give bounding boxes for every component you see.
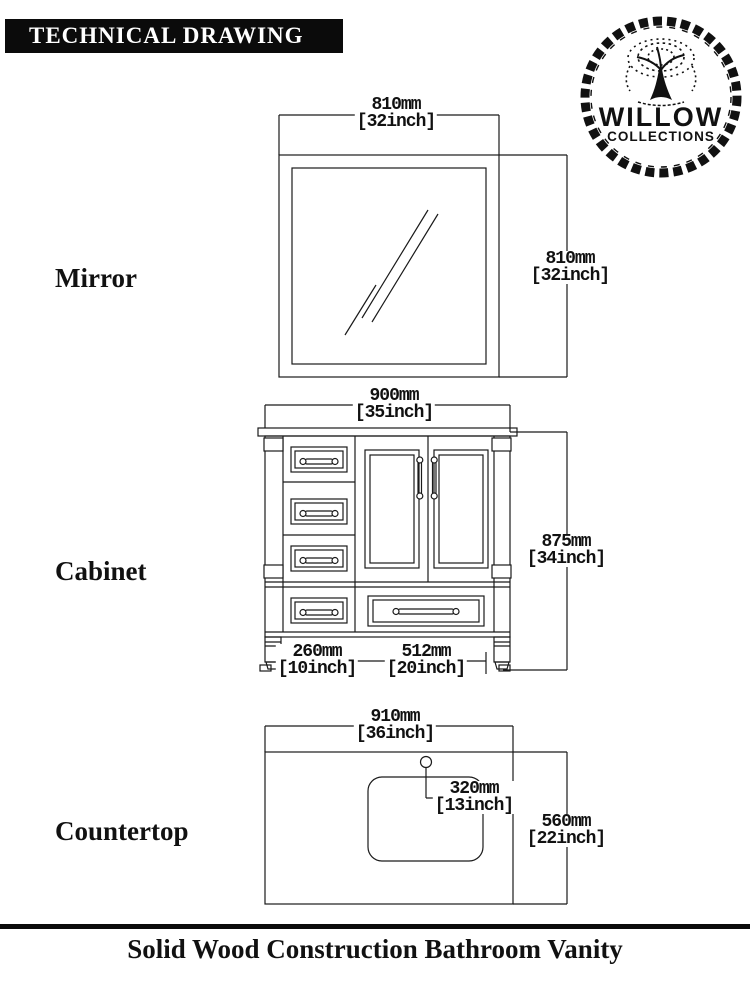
technical-drawing-page: TECHNICAL DRAWING WILLOW COLLECTIONS xyxy=(0,0,750,989)
cabinet-door-width-dim: 512mm[20inch] xyxy=(385,644,467,677)
cabinet-height-dim: 875mm[34inch] xyxy=(525,534,607,567)
countertop-drawing xyxy=(265,726,567,904)
mirror-drawing xyxy=(279,115,567,377)
section-label-countertop: Countertop xyxy=(55,816,189,847)
cabinet-bottom-drawer xyxy=(368,596,484,626)
section-label-cabinet: Cabinet xyxy=(55,556,147,587)
mirror-glass xyxy=(292,168,486,364)
cabinet-body xyxy=(265,436,510,637)
cabinet-drawing xyxy=(258,405,567,674)
countertop-slab xyxy=(265,752,513,904)
mirror-height-dim: 810mm[32inch] xyxy=(529,251,611,284)
cabinet-width-dim: 900mm[35inch] xyxy=(353,388,435,421)
cabinet-doors xyxy=(365,436,488,582)
cabinet-drawer-width-dim: 260mm[10inch] xyxy=(276,644,358,677)
faucet-hole xyxy=(421,757,432,768)
countertop-sink-offset-dim: 320mm[13inch] xyxy=(433,781,515,814)
footer-divider xyxy=(0,924,750,929)
mirror-width-dim: 810mm[32inch] xyxy=(355,97,437,130)
mirror-reflection-lines xyxy=(345,210,438,335)
footer-caption: Solid Wood Construction Bathroom Vanity xyxy=(0,934,750,965)
section-label-mirror: Mirror xyxy=(55,263,137,294)
countertop-width-dim: 910mm[36inch] xyxy=(354,709,436,742)
mirror-frame xyxy=(279,155,499,377)
countertop-depth-dim: 560mm[22inch] xyxy=(525,814,607,847)
cabinet-top xyxy=(258,428,517,436)
